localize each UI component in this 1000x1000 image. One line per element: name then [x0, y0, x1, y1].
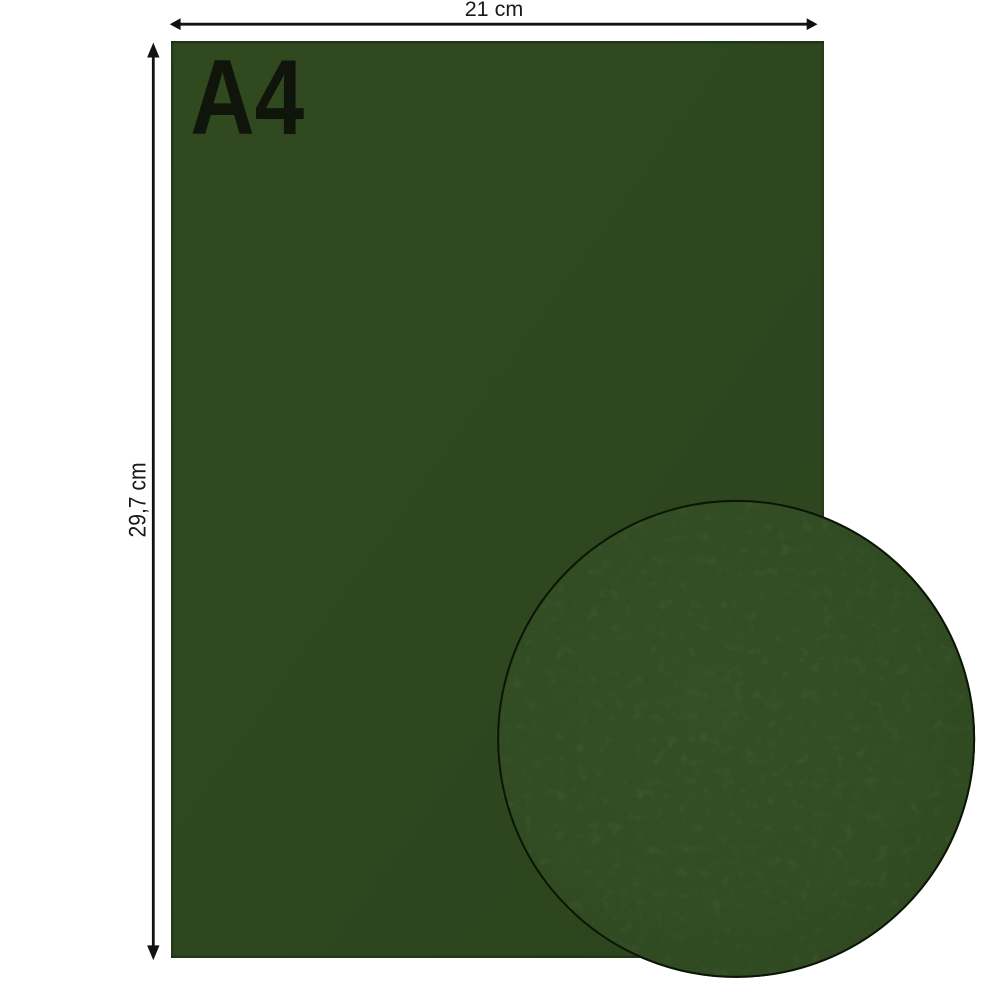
svg-text:A4: A4 [190, 37, 304, 157]
svg-text:29,7 cm: 29,7 cm [123, 462, 151, 537]
svg-text:21 cm: 21 cm [465, 0, 524, 21]
